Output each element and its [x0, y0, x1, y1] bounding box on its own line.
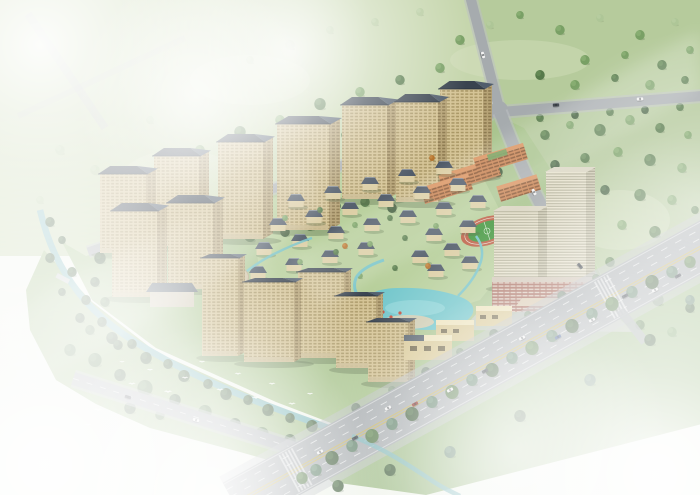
bottom-right-fog [0, 0, 700, 495]
fog-overlays [0, 0, 700, 495]
rendering-canvas [0, 0, 700, 495]
aerial-rendering [0, 0, 700, 495]
